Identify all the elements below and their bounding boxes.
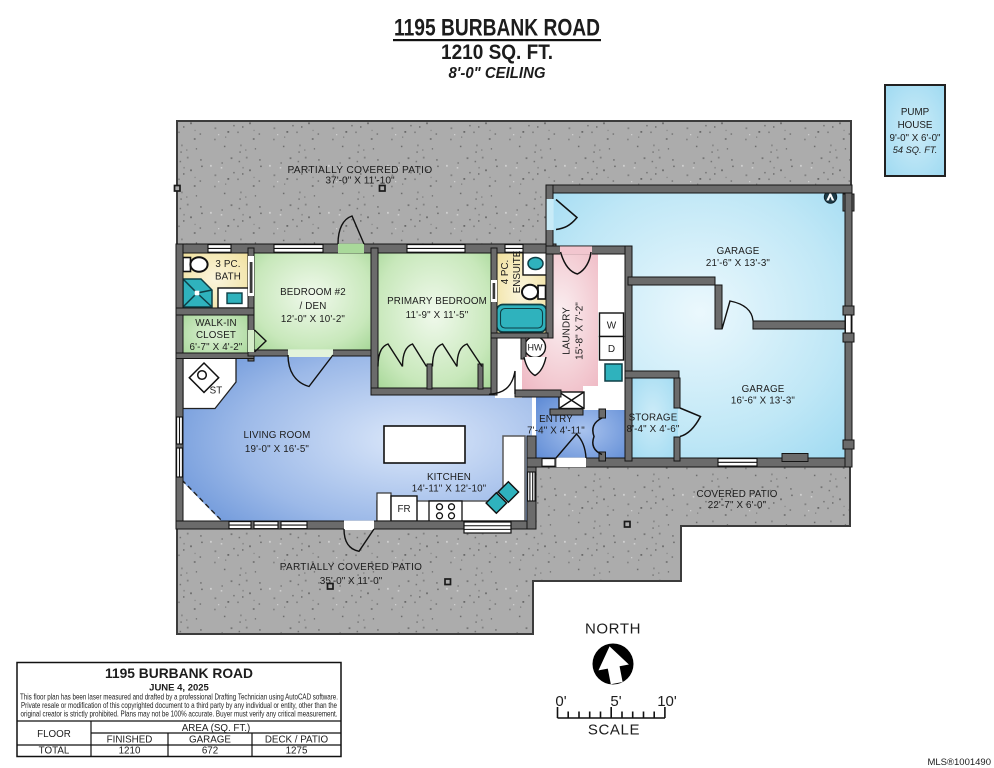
svg-text:21'-6" X 13'-3": 21'-6" X 13'-3" (706, 258, 771, 269)
svg-text:11'-9" X 11'-5": 11'-9" X 11'-5" (406, 310, 469, 321)
svg-text:ENSUITE: ENSUITE (512, 250, 523, 293)
svg-text:COVERED PATIO: COVERED PATIO (696, 489, 777, 500)
svg-text:/ DEN: / DEN (300, 301, 327, 312)
svg-text:14'-11" X 12'-10": 14'-11" X 12'-10" (412, 484, 487, 495)
svg-text:WALK-IN: WALK-IN (195, 318, 237, 329)
svg-text:1210 SQ. FT.: 1210 SQ. FT. (441, 41, 553, 64)
svg-text:0': 0' (555, 693, 566, 710)
svg-text:1195 BURBANK ROAD: 1195 BURBANK ROAD (394, 15, 600, 42)
svg-text:672: 672 (202, 746, 218, 757)
svg-text:CLOSET: CLOSET (196, 330, 236, 341)
svg-text:10': 10' (657, 693, 677, 710)
svg-text:NORTH: NORTH (585, 621, 641, 638)
svg-text:35'-0" X 11'-0": 35'-0" X 11'-0" (320, 576, 383, 587)
svg-text:DECK / PATIO: DECK / PATIO (265, 735, 329, 746)
svg-text:3 PC.: 3 PC. (215, 259, 240, 270)
svg-text:HOUSE: HOUSE (898, 120, 933, 131)
svg-text:8'-4" X 4'-6": 8'-4" X 4'-6" (627, 424, 680, 435)
svg-text:LIVING ROOM: LIVING ROOM (244, 430, 311, 441)
svg-text:D: D (608, 344, 615, 355)
svg-text:KITCHEN: KITCHEN (427, 472, 471, 483)
svg-text:19'-0" X 16'-5": 19'-0" X 16'-5" (245, 444, 310, 455)
svg-text:54 SQ. FT.: 54 SQ. FT. (893, 145, 938, 155)
svg-text:PRIMARY BEDROOM: PRIMARY BEDROOM (387, 296, 487, 307)
svg-text:BEDROOM #2: BEDROOM #2 (280, 287, 346, 298)
svg-text:1275: 1275 (286, 746, 308, 757)
svg-text:9'-0" X 6'-0": 9'-0" X 6'-0" (890, 133, 942, 144)
svg-text:PARTIALLY COVERED PATIO: PARTIALLY COVERED PATIO (280, 562, 423, 573)
svg-text:STORAGE: STORAGE (629, 413, 678, 424)
svg-text:22'-7" X 6'-0": 22'-7" X 6'-0" (708, 500, 767, 511)
svg-text:GARAGE: GARAGE (717, 246, 760, 257)
svg-text:original creator is strictly p: original creator is strictly prohibited.… (21, 709, 338, 719)
svg-text:W: W (607, 321, 617, 332)
svg-text:FR: FR (397, 504, 410, 515)
svg-text:FINISHED: FINISHED (107, 735, 153, 746)
svg-text:TOTAL: TOTAL (39, 746, 70, 757)
svg-text:7'-4" X 4'-11": 7'-4" X 4'-11" (527, 426, 585, 437)
svg-text:37'-0" X 11'-10": 37'-0" X 11'-10" (325, 176, 395, 187)
svg-text:16'-6" X 13'-3": 16'-6" X 13'-3" (731, 396, 796, 407)
svg-text:5': 5' (610, 693, 621, 710)
svg-text:15'-8" X 7'-2": 15'-8" X 7'-2" (575, 302, 586, 360)
svg-text:GARAGE: GARAGE (742, 384, 785, 395)
svg-text:8'-0" CEILING: 8'-0" CEILING (449, 65, 546, 82)
svg-text:LAUNDRY: LAUNDRY (562, 307, 573, 355)
svg-text:1210: 1210 (119, 746, 141, 757)
svg-text:MLS®1001490: MLS®1001490 (927, 757, 991, 768)
svg-text:4 PC.: 4 PC. (500, 260, 511, 285)
svg-text:HW: HW (528, 343, 543, 353)
svg-text:BATH: BATH (215, 272, 241, 283)
svg-text:SCALE: SCALE (588, 722, 640, 739)
svg-text:ENTRY: ENTRY (539, 414, 573, 425)
svg-text:FLOOR: FLOOR (37, 729, 71, 740)
svg-text:PARTIALLY COVERED PATIO: PARTIALLY COVERED PATIO (287, 165, 432, 176)
svg-text:12'-0" X 10'-2": 12'-0" X 10'-2" (281, 314, 346, 325)
svg-text:1195 BURBANK ROAD: 1195 BURBANK ROAD (105, 666, 253, 681)
svg-text:AREA (SQ. FT.): AREA (SQ. FT.) (182, 723, 251, 734)
svg-text:PUMP: PUMP (901, 107, 930, 118)
svg-text:6'-7" X 4'-2": 6'-7" X 4'-2" (190, 342, 243, 353)
svg-text:ST: ST (210, 386, 223, 397)
svg-text:GARAGE: GARAGE (189, 735, 231, 746)
